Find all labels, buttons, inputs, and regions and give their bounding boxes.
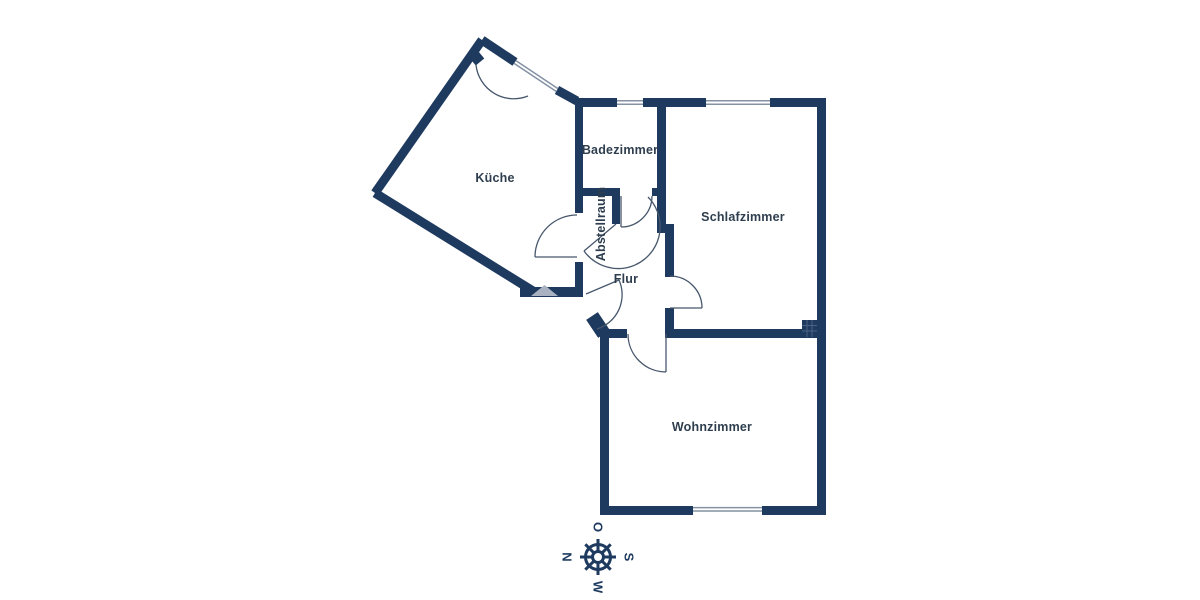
compass-wheel-icon	[580, 539, 616, 575]
wall-schlafzimmer-left-lower	[665, 308, 674, 338]
room-label-kueche: Küche	[475, 171, 514, 185]
wall-schlafzimmer-left-upper	[657, 107, 666, 224]
door-kueche	[535, 215, 577, 257]
compass-label-east: O	[591, 522, 606, 532]
wall-badezimmer-door-block	[652, 188, 665, 196]
wall-bottom-1	[600, 506, 693, 515]
room-label-badezimmer: Badezimmer	[582, 143, 658, 157]
window-schlafzimmer	[706, 101, 770, 104]
room-label-schlafzimmer: Schlafzimmer	[701, 210, 785, 224]
wall-entry-diagonal	[592, 316, 604, 334]
compass-label-north: N	[560, 552, 575, 561]
door-schlafzimmer	[670, 276, 702, 308]
wall-abstellraum-right	[612, 196, 620, 224]
wall-kueche-top-right-b	[557, 90, 577, 101]
wall-bottom-2	[762, 506, 826, 515]
door-wohnzimmer	[628, 334, 666, 372]
compass-label-south: S	[622, 553, 637, 562]
wall-top-2	[643, 98, 706, 107]
window-swing-arc-kueche	[476, 65, 528, 99]
walls	[375, 40, 826, 515]
wall-schlafzimmer-left-mid	[665, 233, 674, 277]
wall-wohnzimmer-left	[600, 329, 609, 515]
room-label-abstellraum: Abstellraum	[594, 187, 608, 261]
window-wohnzimmer	[693, 508, 762, 511]
installation-shaft	[802, 320, 817, 337]
door-badezimmer	[621, 196, 652, 227]
window-badezimmer	[617, 101, 643, 104]
wall-kueche-top-right-a	[482, 40, 515, 62]
floor-plan-page: Küche Badezimmer Abstellraum Flur Schlaf…	[0, 0, 1200, 600]
wall-kueche-top-left	[375, 40, 482, 193]
room-label-wohnzimmer: Wohnzimmer	[672, 420, 752, 434]
wall-right	[817, 98, 826, 515]
compass-rose: O S W N	[560, 522, 637, 594]
floor-plan-canvas: Küche Badezimmer Abstellraum Flur Schlaf…	[0, 0, 1200, 600]
wall-mid-right	[666, 329, 817, 338]
compass-label-west: W	[591, 581, 606, 594]
wall-kueche-bottom-left	[375, 193, 533, 291]
wall-kueche-corner-stub	[471, 51, 480, 62]
window-kueche	[476, 61, 558, 99]
room-label-flur: Flur	[614, 272, 638, 286]
